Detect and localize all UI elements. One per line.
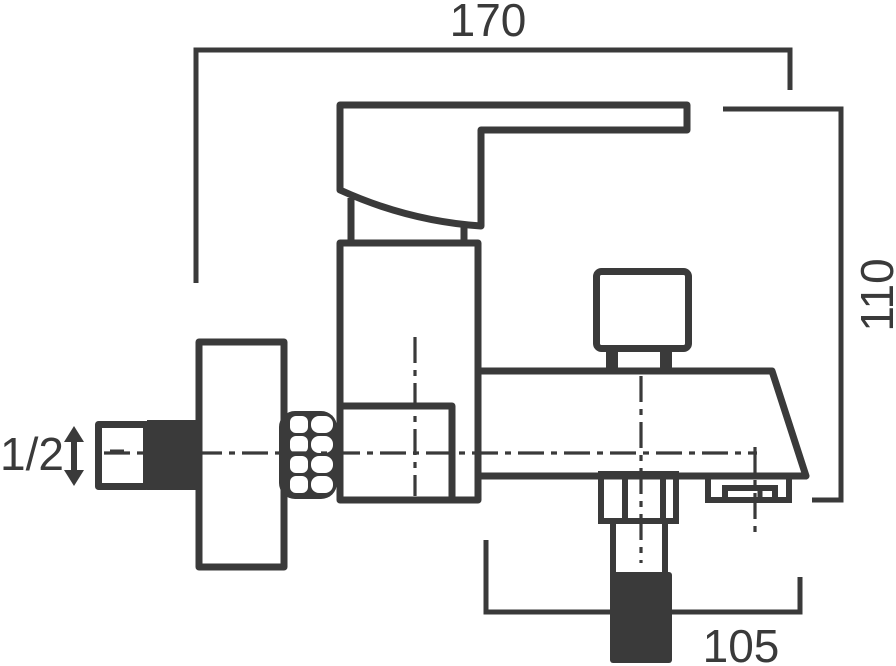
- inlet-size-annotation: 1/2: [0, 426, 84, 486]
- lever-handle: [340, 105, 687, 226]
- shower-hose: [610, 572, 672, 663]
- double-arrow-icon: [64, 426, 84, 486]
- knurl-cell: [311, 436, 333, 453]
- mounting-nut: [279, 411, 337, 499]
- dimension-label-spout-reach: 105: [703, 620, 780, 666]
- drawing-canvas: 170 110 105 1/2: [0, 0, 896, 666]
- knurl-cell: [311, 456, 333, 473]
- spout: [481, 371, 806, 476]
- inlet-size-label: 1/2: [0, 428, 64, 480]
- dimension-overall-width: 170: [196, 0, 790, 283]
- faucet-parts: [99, 105, 807, 663]
- diverter-stem-left: [606, 349, 618, 371]
- dimension-label-height: 110: [851, 258, 896, 331]
- mixer-body: [340, 243, 478, 500]
- dimension-overall-height: 110: [723, 109, 896, 500]
- diverter-knob: [597, 272, 689, 349]
- shower-hose-connector: [613, 521, 665, 575]
- knurl-cell: [290, 436, 308, 453]
- knurl-cell: [311, 416, 333, 433]
- knurl-cell: [290, 476, 308, 493]
- knurl-cell: [290, 456, 308, 473]
- inlet-nipple: [147, 420, 202, 490]
- diverter-stem-right: [660, 349, 672, 371]
- knurl-cell: [311, 476, 333, 493]
- faucet-technical-drawing: 170 110 105 1/2: [0, 0, 896, 666]
- dimension-label-width: 170: [450, 0, 527, 46]
- inlet-thread-stub: [99, 425, 147, 487]
- dimension-line-width: [196, 50, 790, 283]
- dimension-line-height: [723, 109, 841, 500]
- knurl-cell: [290, 416, 308, 433]
